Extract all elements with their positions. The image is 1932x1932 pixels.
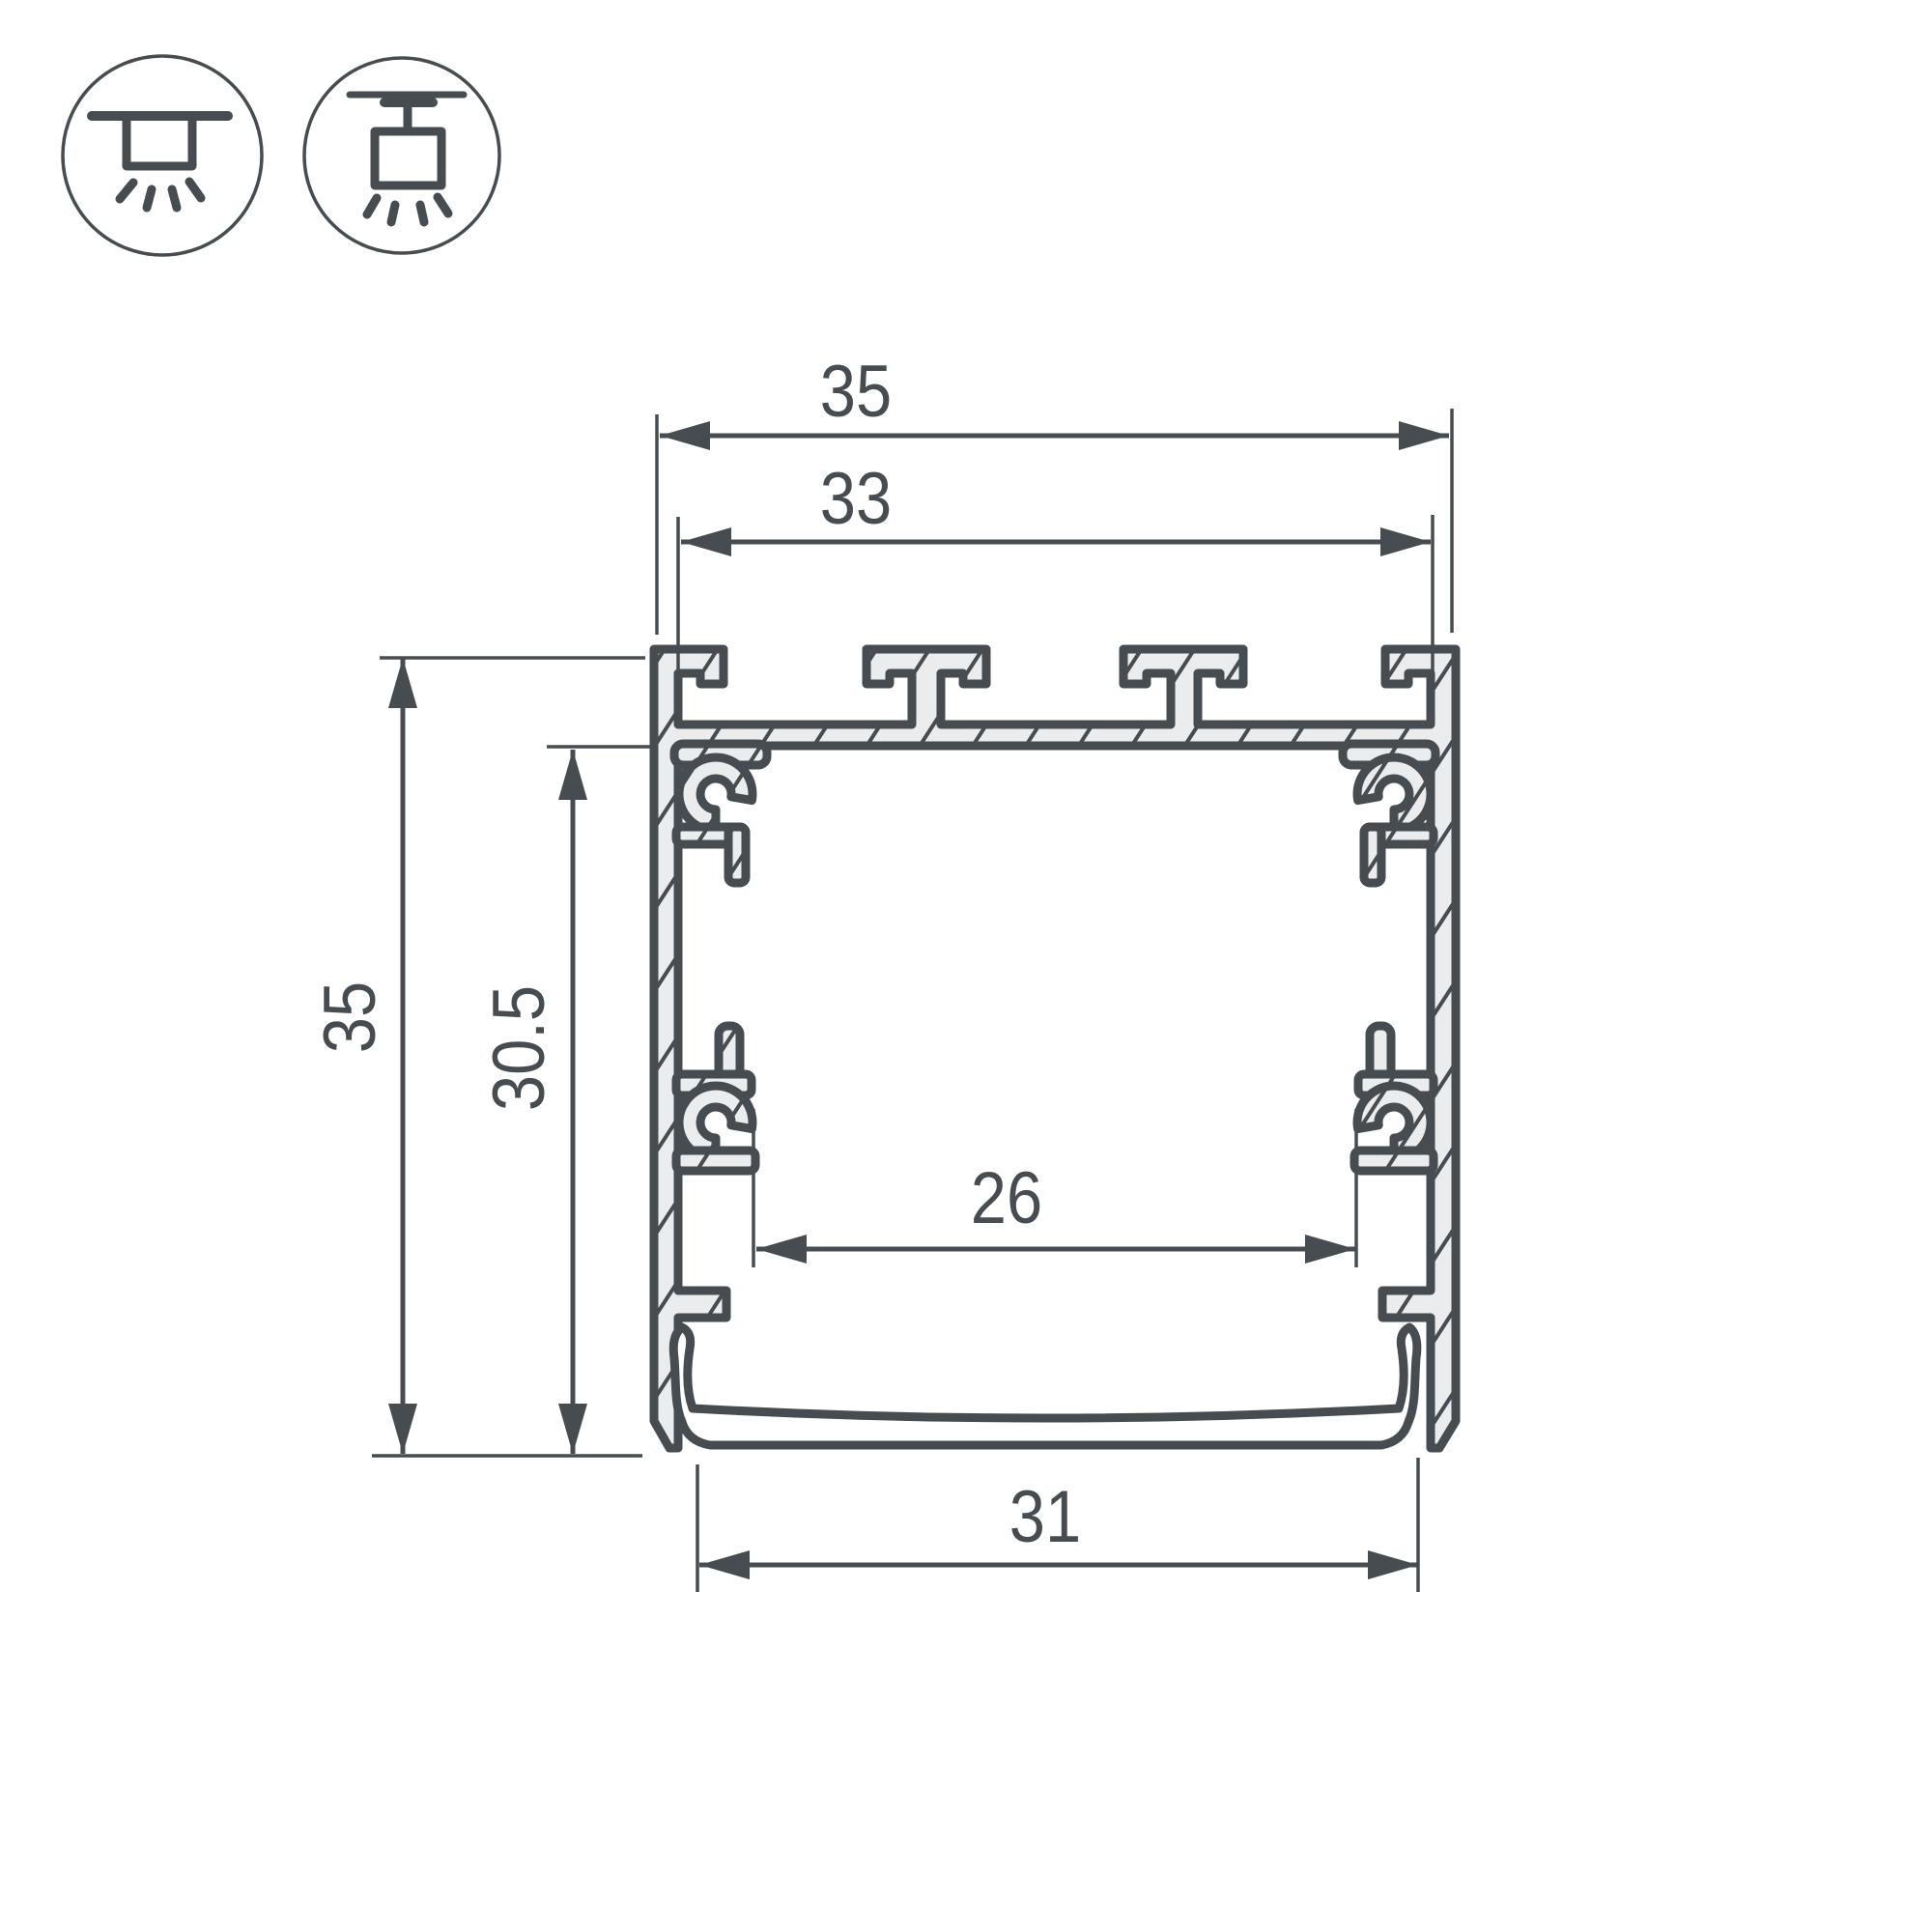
mount-icon-surface (63, 56, 262, 255)
fixture-box (375, 131, 441, 185)
fixture-box (127, 120, 192, 166)
dim-label-inner-height: 30.5 (478, 985, 560, 1111)
dim-label-outer-width: 35 (820, 351, 892, 433)
right-upper-ledge-lip (1364, 827, 1381, 883)
dim-outer-width: 35 (657, 351, 1452, 635)
profile-drawing-svg: 35 33 35 30.5 (0, 0, 1932, 1932)
diffuser (673, 1327, 1417, 1445)
left-lower-ledge (676, 1151, 755, 1171)
dimension-annotations: 35 33 35 30.5 (309, 351, 1452, 1592)
light-rays (120, 182, 201, 208)
right-upper-screw-boss (1357, 757, 1431, 831)
dim-bottom-width: 31 (697, 1458, 1418, 1592)
left-upper-ledge-lip (728, 827, 746, 883)
dim-label-outer-height: 35 (309, 981, 391, 1053)
light-rays (367, 197, 448, 222)
surface-mount-circle (63, 56, 262, 255)
pendant-mount-glyph (350, 95, 464, 222)
dim-outer-height: 35 (309, 658, 645, 1456)
pendant-mount-circle (304, 58, 499, 253)
surface-mount-glyph (92, 116, 228, 208)
dim-inner-channel-width: 26 (753, 1109, 1356, 1267)
profile-body (654, 649, 1456, 1448)
dim-top-inner-width: 33 (678, 458, 1433, 688)
profile-cross-section (654, 649, 1456, 1448)
left-upper-screw-boss (679, 757, 753, 831)
dim-label-bottom-width: 31 (1009, 1476, 1081, 1558)
mount-icon-pendant (304, 58, 499, 253)
dim-label-inner-channel-width: 26 (971, 1157, 1042, 1239)
dim-label-top-inner-width: 33 (820, 458, 892, 540)
technical-drawing-page: 35 33 35 30.5 (0, 0, 1932, 1932)
right-lower-ledge (1354, 1151, 1434, 1171)
dim-inner-height: 30.5 (478, 747, 653, 1454)
